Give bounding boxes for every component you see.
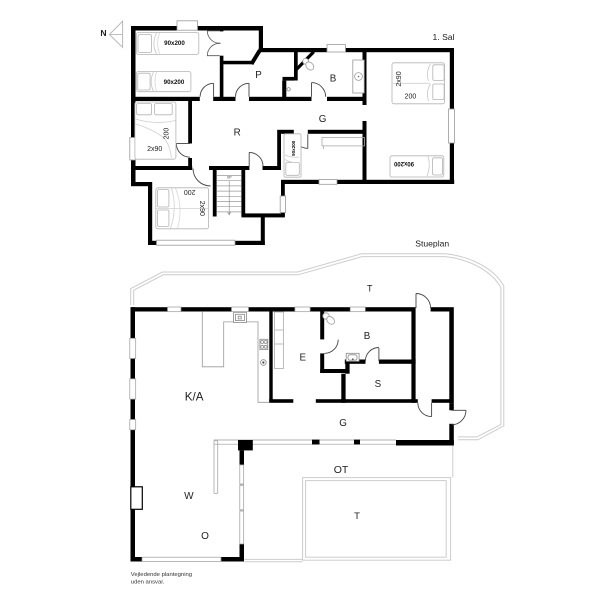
svg-text:S: S <box>375 379 382 390</box>
svg-text:uden ansvar.: uden ansvar. <box>131 580 165 586</box>
svg-text:90x200: 90x200 <box>164 79 185 86</box>
svg-text:90x200: 90x200 <box>164 40 185 47</box>
svg-text:200: 200 <box>164 128 171 140</box>
svg-text:W: W <box>184 491 194 502</box>
svg-text:90x200: 90x200 <box>291 140 296 156</box>
svg-text:R: R <box>234 127 241 138</box>
svg-text:OT: OT <box>334 464 349 476</box>
svg-text:K/A: K/A <box>185 391 204 404</box>
svg-text:T: T <box>354 511 360 522</box>
svg-text:N: N <box>100 28 106 38</box>
svg-text:E: E <box>300 352 307 363</box>
svg-text:OP: OP <box>227 175 233 179</box>
svg-text:1. Sal: 1. Sal <box>433 32 455 42</box>
svg-text:G: G <box>339 418 347 429</box>
svg-text:O: O <box>201 531 209 542</box>
svg-text:90x200: 90x200 <box>393 160 414 166</box>
svg-text:2x90: 2x90 <box>396 71 403 86</box>
svg-text:T: T <box>367 284 373 294</box>
svg-text:G: G <box>319 114 327 125</box>
svg-text:B: B <box>364 331 371 342</box>
svg-text:Stueplan: Stueplan <box>415 238 449 248</box>
svg-text:200: 200 <box>405 94 417 101</box>
svg-text:2x90: 2x90 <box>147 146 162 153</box>
svg-text:2x90: 2x90 <box>198 201 205 216</box>
svg-text:B: B <box>330 74 337 85</box>
svg-text:P: P <box>255 70 262 81</box>
svg-text:200: 200 <box>184 188 196 195</box>
svg-text:Vejledende plantegning: Vejledende plantegning <box>131 572 192 578</box>
